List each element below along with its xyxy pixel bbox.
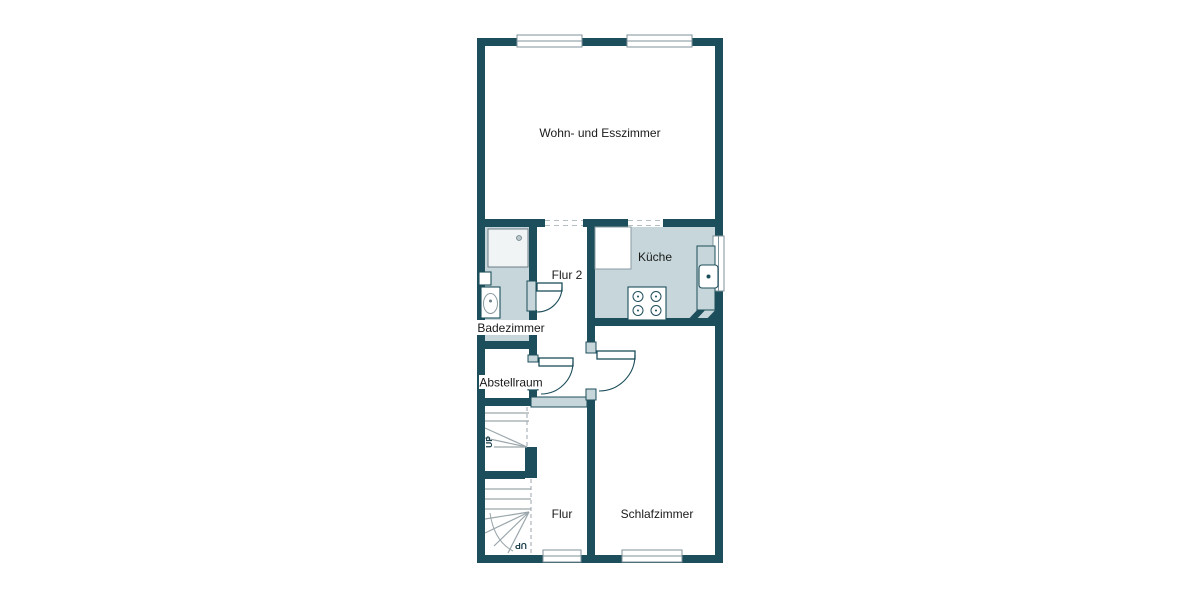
stairs-lower-run: UP: [485, 479, 531, 553]
fridge-counter-block: [595, 227, 631, 269]
door-abstellraum-arc: [541, 362, 573, 394]
door-schlafzimmer-jamb-bottom: [586, 389, 596, 400]
toilet-bowl-icon: [484, 294, 498, 314]
door-abstellraum-jamb-top: [528, 355, 538, 362]
wall-stair-landing-band: [485, 471, 525, 479]
shower-icon: [488, 229, 528, 267]
door-schlafzimmer-jamb-top: [586, 342, 596, 353]
door-badezimmer-leaf: [537, 283, 562, 291]
stove-body: [628, 287, 666, 320]
door-abstellraum-leaf: [539, 358, 573, 366]
stove-burner-dot: [637, 296, 639, 298]
wall-abstell-bottom: [477, 398, 537, 406]
stove-burner-dot: [655, 310, 657, 312]
stairs-up-label-lower: UP: [515, 541, 527, 551]
label-kueche: Küche: [638, 250, 672, 264]
wall-outer-bottom: [477, 555, 723, 563]
stove-burner-dot: [637, 310, 639, 312]
floorplan-canvas: UP UP: [0, 0, 1200, 600]
stair-walkline: [490, 513, 513, 551]
wall-bad-flur2-upper: [529, 227, 537, 282]
wall-outer-right: [715, 38, 723, 563]
floorplan-svg: UP UP: [0, 0, 1200, 600]
wall-mid-left-segment: [485, 219, 545, 227]
partition-flur2-flur: [531, 397, 587, 407]
label-schlafzimmer: Schlafzimmer: [621, 507, 694, 521]
stairs-up-label-upper: UP: [484, 436, 494, 448]
stove-icon: [628, 287, 666, 320]
label-wohn-esszimmer: Wohn- und Esszimmer: [539, 126, 660, 140]
wall-kueche-left: [587, 227, 595, 351]
wall-stair-vertical-block: [525, 447, 537, 478]
wall-bad-bottom: [477, 341, 537, 349]
label-flur: Flur: [552, 507, 573, 521]
shower-drain-icon: [517, 236, 522, 241]
stairs-layer: UP UP: [484, 407, 531, 553]
wall-schlafzimmer-left: [587, 391, 595, 555]
stairs-upper-run: UP: [484, 407, 529, 448]
bath-wall-cabinet: [479, 272, 491, 285]
door-schlafzimmer-leaf: [597, 351, 635, 359]
label-flur-2: Flur 2: [552, 268, 583, 282]
door-schlafzimmer-arc: [599, 355, 635, 391]
wall-mid-center-segment: [583, 219, 628, 227]
label-abstellraum: Abstellraum: [479, 376, 542, 390]
toilet-flush-icon: [489, 300, 492, 303]
kitchen-sink-drain-icon: [707, 275, 711, 279]
stove-burner-dot: [655, 296, 657, 298]
label-badezimmer: Badezimmer: [477, 321, 544, 335]
door-badezimmer-jamb: [527, 281, 536, 311]
wall-mid-right-segment: [663, 219, 715, 227]
